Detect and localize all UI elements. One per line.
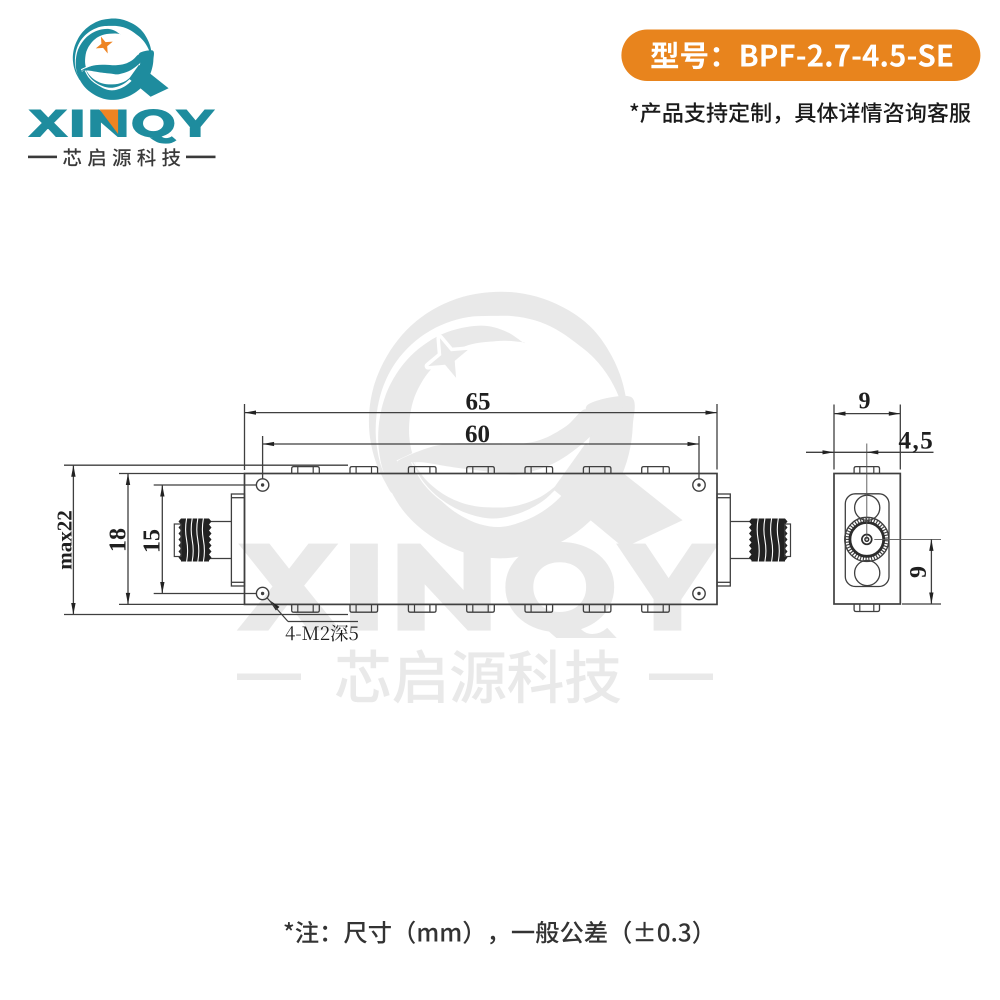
svg-text:4,5: 4,5 <box>899 428 935 455</box>
svg-text:9: 9 <box>906 566 932 578</box>
svg-text:18: 18 <box>105 528 131 552</box>
svg-text:max22: max22 <box>52 510 76 570</box>
svg-text:9: 9 <box>859 389 871 415</box>
svg-text:15: 15 <box>140 529 166 553</box>
svg-text:65: 65 <box>466 389 491 416</box>
svg-text:60: 60 <box>465 421 490 448</box>
